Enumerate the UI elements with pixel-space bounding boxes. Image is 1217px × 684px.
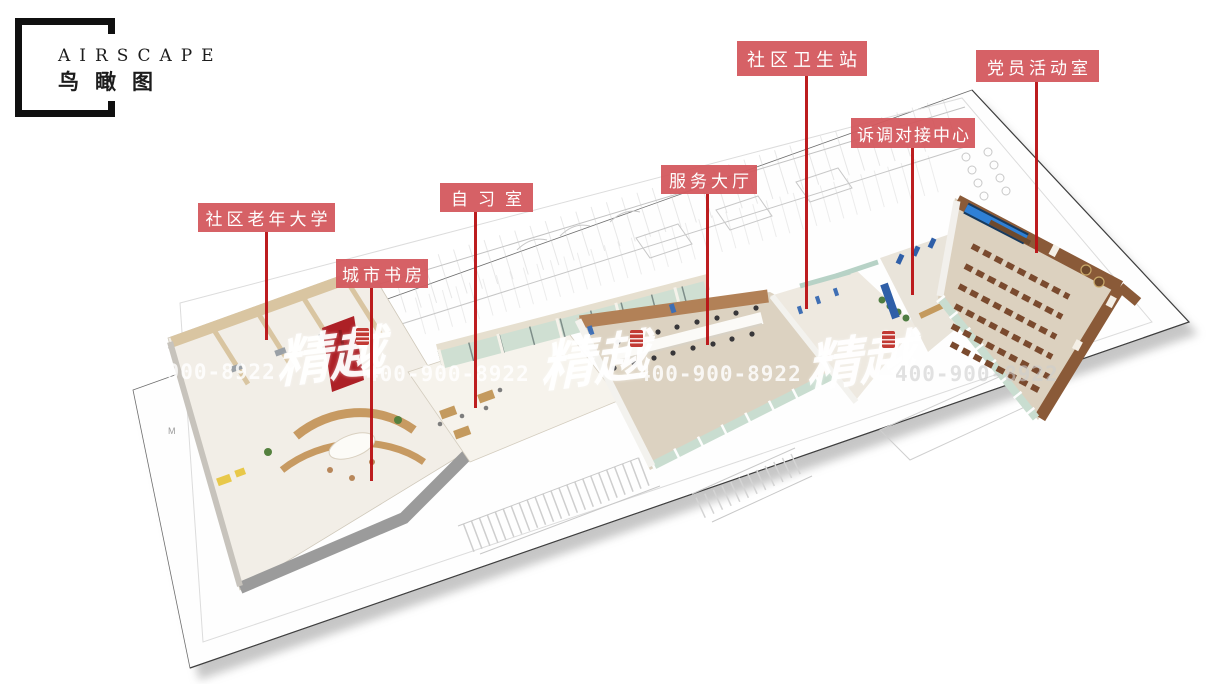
- label-mediation-center: 诉调对接中心: [851, 118, 975, 148]
- label-community-health-station: 社区卫生站: [737, 41, 867, 76]
- leader-line: [1035, 82, 1038, 253]
- label-city-study: 城市书房: [336, 259, 428, 288]
- airscape-birdseye-page: AIRSCAPE 鸟瞰图 400-900-8922 精越 400-900-892…: [0, 0, 1217, 684]
- label-text: 服务大厅: [665, 167, 753, 192]
- leader-line: [474, 212, 477, 408]
- red-seal-stamp-icon: [882, 331, 895, 348]
- label-community-senior-university: 社区老年大学: [198, 203, 335, 232]
- leader-line: [265, 232, 268, 340]
- label-text: 社区卫生站: [742, 46, 862, 72]
- label-party-activity-room: 党员活动室: [976, 50, 1099, 82]
- label-text: 自习室: [441, 185, 532, 210]
- red-seal-stamp-icon: [356, 328, 369, 345]
- red-seal-stamp-icon: [630, 330, 643, 347]
- label-text: 党员活动室: [983, 54, 1092, 79]
- plant: [394, 416, 402, 424]
- label-service-hall: 服务大厅: [661, 165, 757, 194]
- leader-line: [805, 76, 808, 309]
- leader-line: [911, 148, 914, 295]
- plant: [264, 448, 272, 456]
- leader-line: [370, 288, 373, 481]
- plan-grid-mark: M: [168, 426, 176, 436]
- label-self-study-room: 自习室: [440, 183, 533, 212]
- label-text: 社区老年大学: [202, 205, 332, 230]
- leader-line: [706, 194, 709, 345]
- label-text: 诉调对接中心: [855, 121, 971, 146]
- label-text: 城市书房: [338, 261, 426, 286]
